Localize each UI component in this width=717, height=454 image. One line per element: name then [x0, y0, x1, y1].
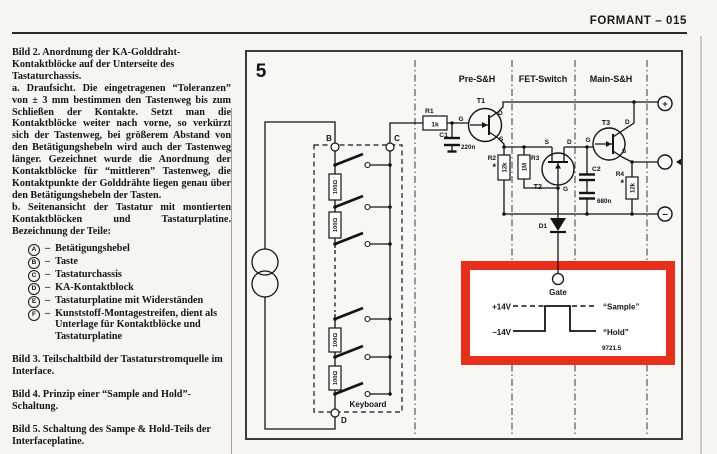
current-source-symbol — [252, 249, 278, 297]
keyboard-resistor-value: 100Ω — [333, 370, 339, 385]
legend-label: Betätigungshebel — [55, 243, 130, 255]
page-header-title: FORMANT – 015 — [380, 15, 687, 27]
legend-item-f: F – Kunststoff-Montagestreifen, dient al… — [28, 308, 231, 344]
legend-dash: – — [45, 243, 50, 255]
r2-label: R2 — [488, 155, 497, 162]
r2-select-asterisk: * — [492, 162, 496, 172]
level-low-label: –14V — [492, 328, 511, 337]
parts-legend: A – Betätigungshebel B – Taste C – Tasta… — [12, 243, 231, 344]
level-high-label: +14V — [492, 303, 512, 312]
t3-pin-s: S — [622, 148, 627, 155]
circled-letter-f: F — [28, 309, 40, 321]
r4-select-asterisk: * — [620, 178, 624, 188]
legend-dash: – — [45, 295, 50, 307]
legend-item-d: D – KA-Kontaktblock — [28, 282, 231, 295]
terminal-circles — [658, 97, 672, 222]
legend-dash: – — [45, 308, 50, 320]
legend-label: Tastaturplatine mit Widerständen — [55, 295, 203, 307]
keyboard-label: Keyboard — [350, 400, 387, 409]
circled-letter-b: B — [28, 257, 40, 269]
c1-value: 220n — [461, 144, 476, 151]
section-label-fet-switch: FET-Switch — [519, 74, 568, 84]
c2-label: C2 — [592, 166, 601, 173]
figure-ref-number: 9721.5 — [602, 345, 622, 352]
r3-value: 1M — [523, 163, 529, 171]
legend-item-e: E – Tastaturplatine mit Widerständen — [28, 295, 231, 308]
column-divider-line — [231, 108, 232, 454]
left-text-column: Bild 2. Anordnung der KA-Golddraht-Konta… — [12, 47, 231, 448]
figure-5-frame: 5 Pre-S&H FET-Switch Main-S&H Keyboard — [245, 50, 683, 440]
circled-letter-c: C — [28, 270, 40, 282]
node-label-b: B — [326, 134, 332, 143]
node-label-d: D — [341, 416, 347, 425]
output-arrow-symbol — [676, 156, 681, 169]
keyboard-resistor-value: 100Ω — [333, 332, 339, 347]
t2-label: T2 — [534, 182, 542, 191]
section-separator-lines — [415, 60, 647, 434]
transistor-t3 — [593, 128, 625, 160]
bild3-caption: Bild 3. Teilschaltbild der Tastaturstrom… — [12, 354, 231, 378]
t3-pin-g: G — [585, 137, 590, 144]
t2-pin-s: S — [545, 139, 550, 146]
legend-label: KA-Kontaktblock — [55, 282, 134, 294]
circled-letter-e: E — [28, 296, 40, 308]
c2-value: 680n — [597, 198, 612, 205]
legend-item-b: B – Taste — [28, 256, 231, 269]
legend-dash: – — [45, 282, 50, 294]
t1-pin-g: G — [458, 116, 463, 123]
r1-label: R1 — [425, 108, 434, 115]
legend-label: Tastaturchassis — [55, 269, 122, 281]
t3-label: T3 — [602, 118, 610, 127]
red-highlight-box — [466, 266, 671, 361]
scanned-document-page: FORMANT – 015 Bild 2. Anordnung der KA-G… — [0, 0, 717, 454]
section-label-main-sh: Main-S&H — [590, 74, 633, 84]
legend-label: Taste — [55, 256, 78, 268]
section-label-pre-sh: Pre-S&H — [459, 74, 496, 84]
bild2-caption: Bild 2. Anordnung der KA-Golddraht-Konta… — [12, 47, 231, 83]
legend-item-c: C – Tastaturchassis — [28, 269, 231, 282]
paragraph-b: b. Seitenansicht der Tastatur mit montie… — [12, 202, 231, 238]
legend-dash: – — [45, 269, 50, 281]
bild5-caption: Bild 5. Schaltung des Sampe & Hold-Teils… — [12, 424, 231, 448]
bild4-caption: Bild 4. Prinzip einer “Sample and Hold”-… — [12, 389, 231, 413]
keyboard-dashed-box — [314, 145, 402, 412]
plus-terminal-sign: + — [662, 99, 668, 110]
circled-letter-a: A — [28, 244, 40, 256]
node-label-c: C — [394, 134, 400, 143]
keyboard-resistor-value: 100Ω — [333, 179, 339, 194]
r2-value: 12k — [503, 162, 509, 173]
transistor-t2 — [542, 147, 574, 185]
t3-pin-d: D — [625, 119, 630, 126]
keyboard-resistor-value: 100Ω — [333, 217, 339, 232]
r4-label: R4 — [616, 171, 625, 178]
minus-terminal-sign: − — [662, 210, 668, 221]
header-rule — [12, 32, 687, 34]
t1-label: T1 — [477, 96, 485, 105]
paragraph-a: a. Draufsicht. Die eingetragenen “Tolera… — [12, 83, 231, 202]
t2-pin-g: G — [563, 186, 568, 193]
t2-pin-d: D — [567, 139, 572, 146]
legend-label: Kunststoff-Montagestreifen, dient als Un… — [55, 308, 231, 344]
c1-label: C1 — [439, 132, 448, 139]
sample-hold-schematic: 5 Pre-S&H FET-Switch Main-S&H Keyboard — [247, 52, 681, 438]
r4-value: 12k — [631, 182, 637, 193]
sample-label: “Sample” — [603, 303, 639, 312]
d1-label: D1 — [539, 223, 548, 230]
t1-pin-s: S — [499, 136, 504, 143]
circled-letter-d: D — [28, 283, 40, 295]
transistor-t1 — [469, 109, 502, 142]
legend-dash: – — [45, 256, 50, 268]
r3-label: R3 — [531, 155, 540, 162]
legend-item-a: A – Betätigungshebel — [28, 243, 231, 256]
hold-label: “Hold” — [603, 328, 629, 337]
scan-page-edge — [700, 36, 702, 454]
gate-label: Gate — [549, 288, 567, 297]
figure-number: 5 — [256, 61, 267, 82]
r1-value: 1k — [431, 122, 439, 129]
diode-d1 — [550, 218, 566, 232]
t1-pin-d: D — [498, 110, 503, 117]
